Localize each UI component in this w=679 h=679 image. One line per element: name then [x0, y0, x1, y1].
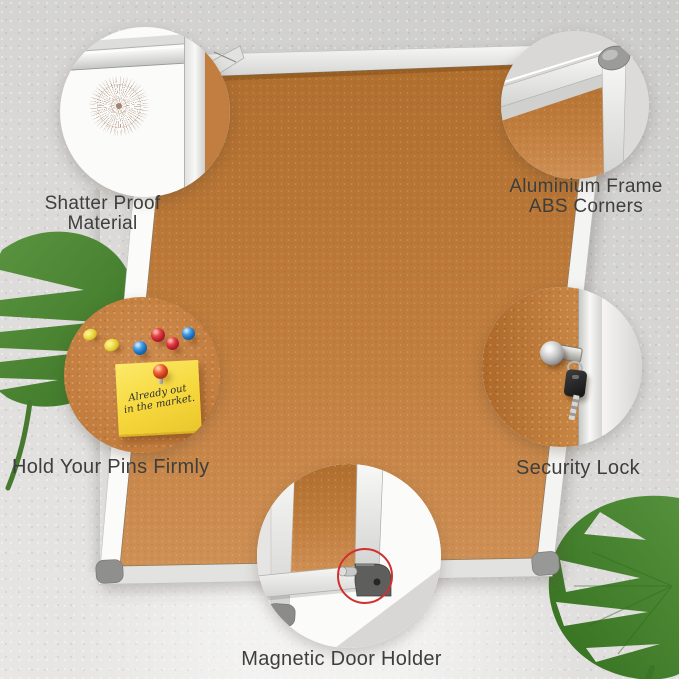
wall-zoom [602, 287, 642, 447]
push-pin-yellow-2 [102, 337, 120, 354]
magnet-corner-block [355, 564, 391, 596]
door-bottom-cap [266, 603, 295, 627]
cork-sliver [205, 27, 231, 197]
door-side-rail [184, 27, 205, 197]
label-shatter-proof: Shatter Proof Material [20, 194, 185, 234]
push-pin-blue-2 [182, 327, 195, 340]
cork-zoom [482, 287, 580, 447]
push-pin-blue-1 [133, 341, 147, 355]
callout-magnet-circle [257, 464, 441, 648]
sticky-note-text: Already out in the market. [116, 381, 202, 417]
callout-pins-circle: Already out in the market. [64, 297, 220, 453]
key-head-slot [572, 375, 579, 379]
product-feature-image: Already out in the market. [0, 0, 679, 679]
corner-screw [374, 579, 381, 586]
abs-corner-cap-bottom-left [95, 559, 123, 583]
push-pin-yellow-1 [81, 327, 98, 342]
label-security-lock: Security Lock [516, 457, 640, 480]
monstera-leaf-bottom-right [549, 496, 679, 679]
label-hold-pins: Hold Your Pins Firmly [12, 456, 209, 479]
crack-center [116, 103, 122, 109]
callout-lock-circle [482, 287, 642, 447]
push-pin-red-1 [151, 328, 165, 342]
push-pin-red-2 [166, 337, 179, 350]
abs-corner-cap-bottom-right [531, 551, 560, 576]
lock-icon [540, 341, 564, 365]
push-pin-orange [153, 364, 168, 379]
callout-shatter-circle [60, 27, 230, 197]
key-head [563, 369, 587, 398]
label-magnetic-door-holder: Magnetic Door Holder [239, 648, 444, 671]
door-edge-bar [355, 464, 383, 570]
callout-corner-circle [501, 31, 649, 179]
label-aluminium-frame: Aluminium Frame ABS Corners [496, 177, 676, 217]
door-edge-bar [602, 57, 626, 179]
